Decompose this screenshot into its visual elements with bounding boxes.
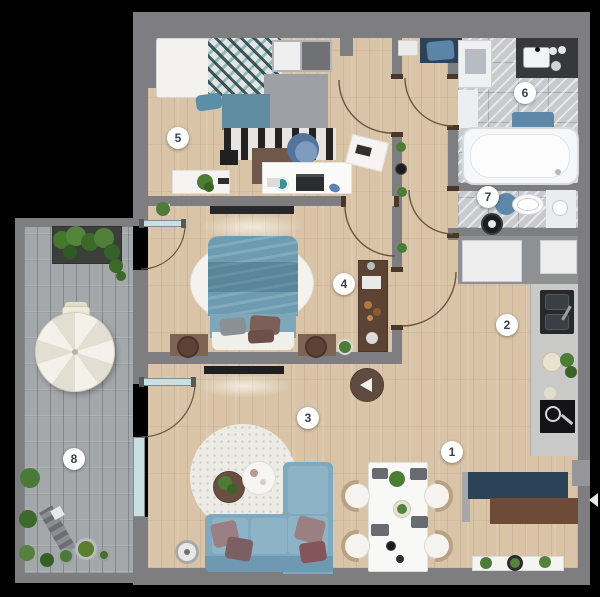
balcony-plant	[20, 468, 40, 488]
planter-greens	[104, 244, 120, 260]
kitchen-plant-leaves	[565, 366, 577, 378]
tv-light	[196, 374, 292, 398]
table-plant-leaves	[227, 484, 237, 494]
copper-bowl	[367, 315, 373, 321]
sofa-pillow	[299, 540, 328, 563]
placemat	[410, 468, 427, 480]
table-deco	[260, 479, 266, 485]
coffee-table-white	[242, 461, 276, 495]
wall-top	[133, 12, 590, 38]
duvet-fold	[208, 262, 298, 292]
chaise-cushion	[288, 466, 328, 514]
room-badge-6[interactable]: 6	[514, 82, 536, 104]
floor-lamp-pole	[184, 549, 190, 555]
rug-black	[220, 150, 238, 165]
balcony-door-living	[141, 378, 195, 386]
hall-cabinet	[398, 40, 418, 56]
planter-vine	[116, 271, 126, 281]
sill-plant	[539, 556, 551, 568]
room-badge-2[interactable]: 2	[496, 314, 518, 336]
sink-faucet	[535, 47, 540, 52]
media-console-navy	[468, 472, 568, 499]
door-jamb	[394, 196, 399, 207]
coffee-cup	[250, 469, 258, 477]
wall-left-c	[133, 517, 148, 568]
door-jamb	[447, 125, 459, 130]
door-hinge-cap	[139, 219, 144, 228]
desk-papers	[267, 178, 280, 187]
cooktop-burner	[545, 406, 561, 422]
niche-plant	[396, 142, 406, 152]
wall-wc-bottom	[448, 228, 578, 236]
desk-chair	[287, 133, 319, 165]
niche-clock	[395, 163, 407, 175]
planter-greens	[63, 245, 77, 259]
door-jamb	[447, 233, 459, 238]
wc-sink	[552, 200, 568, 216]
shelf-item	[218, 178, 229, 184]
balcony-door-bedroom	[141, 220, 185, 227]
vanity-knob	[549, 47, 557, 55]
placemat	[372, 468, 388, 479]
door-jamb	[341, 196, 346, 207]
entry-arrow-icon	[589, 493, 598, 507]
balcony-plant	[40, 553, 54, 567]
small-plate	[544, 387, 556, 399]
balcony-plant	[19, 510, 37, 528]
room-badge-3[interactable]: 3	[297, 407, 319, 429]
wall-plant	[156, 202, 170, 216]
copper-bowl	[364, 301, 372, 309]
kitchen-plant	[560, 353, 574, 367]
sofa-seat-cushion	[251, 518, 287, 554]
left-window	[133, 437, 145, 517]
door-hinge-cap	[139, 377, 144, 387]
sink-bowl	[545, 294, 569, 310]
sill-plant	[480, 557, 492, 569]
dining-chair	[424, 533, 450, 559]
room-badge-7[interactable]: 7	[477, 186, 499, 208]
wall-bed5-bed4-a	[148, 196, 345, 206]
laptop	[296, 174, 324, 191]
tv-console	[210, 206, 294, 214]
soap-dish	[551, 61, 561, 71]
console-dish	[366, 332, 378, 344]
console-knob	[367, 262, 375, 270]
dining-chair	[424, 483, 450, 509]
floor-machine-center	[488, 220, 496, 228]
wall-left-a	[133, 88, 148, 226]
stool	[305, 336, 327, 358]
wall-left-b	[133, 270, 148, 384]
door-jamb	[391, 267, 403, 272]
toilet-seat	[517, 198, 539, 211]
wall-hall-c	[392, 206, 402, 272]
umbrella-pole	[72, 349, 78, 355]
wardrobe-door-dark	[302, 42, 330, 70]
salad-bowl-planter	[75, 538, 97, 560]
bed-pillow-brown	[248, 329, 275, 343]
table-plant	[389, 471, 405, 487]
bed-pillow-gray	[219, 317, 247, 337]
single-bed-frame	[156, 38, 210, 98]
bath-mat-white	[458, 90, 478, 128]
door-jamb	[391, 325, 403, 330]
washer-door	[465, 49, 486, 74]
wall-bath-b	[448, 126, 458, 190]
console-card	[362, 276, 381, 289]
placemat	[411, 516, 428, 528]
sofa-pillow	[224, 536, 253, 562]
bathtub-drain	[555, 169, 561, 175]
pouf-deco-triangle	[360, 378, 372, 392]
door-end-cap	[181, 219, 186, 228]
bench-pillow	[426, 40, 455, 61]
door-jamb	[447, 186, 459, 191]
dining-chair	[344, 533, 370, 559]
balcony-wall-left	[15, 218, 24, 583]
door-jamb	[391, 132, 403, 137]
wall-left-corner-block	[133, 12, 157, 88]
copper-bowl	[373, 308, 381, 316]
floor-plan: 12345678	[0, 0, 600, 597]
potted-plant	[98, 549, 110, 561]
salad-greens	[397, 504, 407, 514]
tv-console	[204, 366, 284, 374]
closet-unit	[540, 240, 577, 274]
room-badge-8[interactable]: 8	[63, 448, 85, 470]
wall-stub-top	[340, 38, 353, 56]
serving-plate	[542, 352, 562, 372]
niche-plant	[397, 187, 407, 197]
potted-plant	[58, 548, 74, 564]
bottle	[386, 541, 396, 551]
dining-chair	[344, 483, 370, 509]
stool	[177, 336, 199, 358]
door-jamb	[391, 74, 403, 79]
niche-plant	[397, 243, 407, 253]
wall-hall-d	[392, 326, 402, 364]
sill-plant-greens	[510, 558, 520, 568]
room-badge-4[interactable]: 4	[333, 273, 355, 295]
vanity-knob	[558, 46, 566, 54]
balcony-plant	[19, 545, 35, 561]
wardrobe-door-white	[274, 42, 300, 70]
table-item	[396, 555, 404, 563]
room-badge-1[interactable]: 1	[441, 441, 463, 463]
plant-leaves	[204, 182, 214, 192]
closet-unit	[462, 240, 522, 282]
bedroom-plant	[337, 339, 353, 355]
balcony-wall-bottom	[15, 573, 135, 583]
rug-blue	[222, 94, 270, 130]
entry-recess	[572, 460, 590, 486]
media-console-brown	[490, 498, 578, 524]
room-badge-5[interactable]: 5	[167, 127, 189, 149]
placemat	[371, 524, 389, 536]
